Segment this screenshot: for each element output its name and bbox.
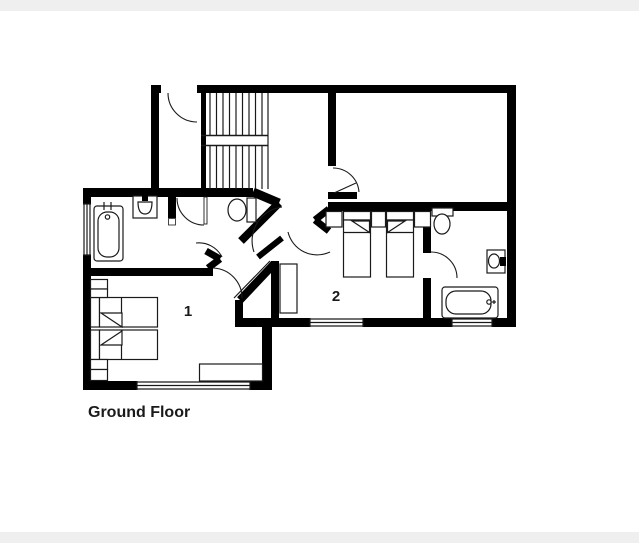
floor-plan-page: 1 2 Ground Floor — [0, 0, 639, 543]
nightstand — [326, 212, 342, 228]
nightstand — [91, 280, 108, 290]
nightstand — [91, 370, 108, 381]
sink-right — [487, 250, 506, 273]
single-bed — [91, 330, 158, 360]
bathtub-right — [442, 287, 498, 318]
room1-label: 1 — [184, 303, 192, 320]
room2-label: 2 — [332, 288, 340, 305]
desk-room1 — [200, 364, 263, 381]
single-bed — [387, 212, 414, 278]
floor-plan-canvas: 1 2 Ground Floor — [0, 0, 639, 543]
window-room2 — [310, 318, 363, 328]
top-band — [0, 0, 639, 11]
floor-caption: Ground Floor — [88, 404, 190, 421]
bathtub-left — [94, 202, 123, 261]
toilet-wc — [228, 198, 256, 222]
window-bathroom — [452, 318, 492, 328]
wardrobe-room2 — [280, 264, 297, 313]
single-bed — [344, 212, 371, 278]
bottom-band — [0, 532, 639, 543]
nightstand — [91, 360, 108, 370]
nightstand — [91, 289, 108, 298]
nightstand — [415, 212, 431, 228]
window-room1 — [137, 381, 250, 391]
single-bed — [91, 298, 158, 328]
sink-left — [133, 192, 157, 218]
nightstand — [372, 212, 386, 228]
door-leaf-wc — [204, 197, 207, 224]
window-left — [83, 204, 92, 255]
